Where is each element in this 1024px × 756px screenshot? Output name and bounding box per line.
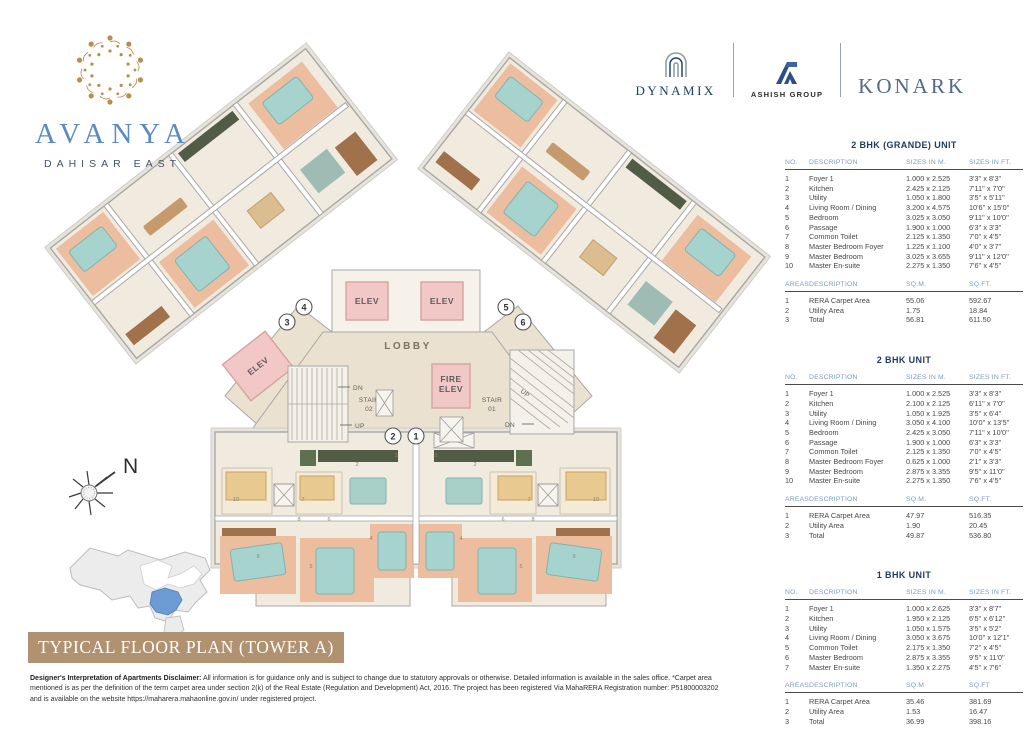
table-cell: Living Room / Dining <box>809 203 906 213</box>
table-cell: 9'11'' x 12'0'' <box>969 252 1023 262</box>
table-cell: Master En-suite <box>809 663 906 673</box>
konark-logo: KONARK <box>858 41 966 99</box>
dimension-row: 2Kitchen2.425 x 2.1257'11'' x 7'0'' <box>785 184 1023 194</box>
svg-text:1: 1 <box>413 432 418 442</box>
table-cell: 20.45 <box>969 521 1023 531</box>
table-cell: SQ.M. <box>906 281 969 291</box>
room-number: 4 <box>459 536 462 542</box>
room-number: 4 <box>369 536 372 542</box>
stair-number: 01 <box>488 406 496 413</box>
table-cell: 1 <box>785 174 809 184</box>
table-header-row: NO.DESCRIPTIONSIZES IN M.SIZES IN FT. <box>785 159 1023 170</box>
table-cell: Kitchen <box>809 184 906 194</box>
table-cell: 35.46 <box>906 697 969 707</box>
area-header-row: AREASDESCRIPTIONSQ.MSQ.FT <box>785 682 1023 693</box>
unit-table: 2 BHK UNIT NO.DESCRIPTIONSIZES IN M.SIZE… <box>785 355 1023 540</box>
table-cell: Total <box>809 531 906 541</box>
table-cell: 8 <box>785 457 809 467</box>
table-cell: 4'5'' x 7'6'' <box>969 663 1023 673</box>
brand-name: AVANYA <box>35 118 192 151</box>
table-cell: Utility <box>809 193 906 203</box>
table-cell: 3'3'' x 8'7'' <box>969 604 1023 614</box>
table-cell: AREAS <box>785 682 809 692</box>
room-number: 9 <box>256 554 259 560</box>
table-cell: 1.225 x 1.100 <box>906 242 969 252</box>
table-cell: Master Bedroom <box>809 653 906 663</box>
up-label: UP <box>355 423 365 430</box>
table-cell: Master Bedroom <box>809 467 906 477</box>
table-cell: 1 <box>785 604 809 614</box>
table-cell: 8 <box>785 242 809 252</box>
room-number: 8 <box>297 517 300 523</box>
table-cell: 6 <box>785 438 809 448</box>
dimension-row: 7Master En-suite1.350 x 2.2754'5'' x 7'6… <box>785 663 1023 673</box>
table-cell: 3'5'' x 5'11'' <box>969 193 1023 203</box>
dimension-row: 8Master Bedroom Foyer1.225 x 1.1004'0'' … <box>785 242 1023 252</box>
table-cell: 1 <box>785 389 809 399</box>
unit-table: 2 BHK (GRANDE) UNIT NO.DESCRIPTIONSIZES … <box>785 140 1023 325</box>
table-cell: Kitchen <box>809 399 906 409</box>
table-cell: DESCRIPTION <box>809 374 906 384</box>
unit-marker: 6 <box>515 314 531 330</box>
table-cell: 1.050 x 1.575 <box>906 624 969 634</box>
area-row: 1RERA Carpet Area55.06592.67 <box>785 296 1023 306</box>
table-cell: 3 <box>785 409 809 419</box>
table-cell: 1.350 x 2.275 <box>906 663 969 673</box>
table-cell: 2 <box>785 399 809 409</box>
table-cell: Foyer 1 <box>809 604 906 614</box>
table-cell: 381.69 <box>969 697 1023 707</box>
svg-text:2: 2 <box>390 432 395 442</box>
area-row: 2Utility Area1.5316.47 <box>785 707 1023 717</box>
room-number: 1 <box>394 453 397 459</box>
dimension-row: 5Common Toilet2.175 x 1.3507'2'' x 4'5'' <box>785 643 1023 653</box>
unit-marker: 5 <box>498 299 514 315</box>
table-cell: SIZES IN FT. <box>969 159 1023 169</box>
table-cell: Master Bedroom Foyer <box>809 457 906 467</box>
table-cell: 7'11'' x 7'0'' <box>969 184 1023 194</box>
table-cell: DESCRIPTION <box>809 281 906 291</box>
table-cell: 3.050 x 4.100 <box>906 418 969 428</box>
table-cell: 1.000 x 2.525 <box>906 174 969 184</box>
table-cell: 4 <box>785 633 809 643</box>
table-cell: 10 <box>785 261 809 271</box>
table-cell: 1.53 <box>906 707 969 717</box>
table-header-row: NO.DESCRIPTIONSIZES IN M.SIZES IN FT. <box>785 589 1023 600</box>
dimension-rows: 1Foyer 11.000 x 2.5253'3'' x 8'3''2Kitch… <box>785 385 1023 486</box>
table-cell: 6'5'' x 6'12'' <box>969 614 1023 624</box>
table-cell: 16.47 <box>969 707 1023 717</box>
table-cell: 6 <box>785 223 809 233</box>
room-number: 5 <box>519 564 522 570</box>
table-cell: SQ.FT <box>969 682 1023 692</box>
table-cell: NO. <box>785 374 809 384</box>
table-cell: 2.425 x 2.125 <box>906 184 969 194</box>
dynamix-label: DYNAMIX <box>635 83 715 99</box>
dimension-row: 7Common Toilet2.125 x 1.3507'0'' x 4'5'' <box>785 447 1023 457</box>
room-number: 2 <box>355 462 358 468</box>
table-cell: 1.050 x 1.800 <box>906 193 969 203</box>
table-cell: 9'5'' x 11'0'' <box>969 653 1023 663</box>
table-cell: DESCRIPTION <box>809 682 906 692</box>
table-cell: SIZES IN M. <box>906 159 969 169</box>
site-key-map <box>70 548 210 640</box>
table-cell: SQ.FT. <box>969 496 1023 506</box>
table-cell: Living Room / Dining <box>809 418 906 428</box>
svg-text:3: 3 <box>284 318 289 328</box>
table-cell: Kitchen <box>809 614 906 624</box>
dynamix-arch-icon <box>661 51 691 79</box>
table-cell: 3.200 x 4.575 <box>906 203 969 213</box>
table-cell: 2 <box>785 184 809 194</box>
unit-tables: 2 BHK (GRANDE) UNIT NO.DESCRIPTIONSIZES … <box>785 140 1023 756</box>
table-cell: 47.97 <box>906 511 969 521</box>
area-rows: 1RERA Carpet Area35.46381.692Utility Are… <box>785 693 1023 726</box>
stair-label: STAIR <box>482 397 502 404</box>
logo-divider <box>733 43 734 97</box>
dimension-row: 8Master Bedroom Foyer0.625 x 1.0002'1'' … <box>785 457 1023 467</box>
table-cell: 9 <box>785 252 809 262</box>
table-cell: Living Room / Dining <box>809 633 906 643</box>
dimension-row: 9Master Bedroom3.025 x 3.6559'11'' x 12'… <box>785 252 1023 262</box>
dimension-row: 10Master En-suite2.275 x 1.3507'6'' x 4'… <box>785 261 1023 271</box>
table-cell: DESCRIPTION <box>809 589 906 599</box>
table-cell: 4 <box>785 418 809 428</box>
table-cell: 10'6'' x 15'0'' <box>969 203 1023 213</box>
table-cell: NO. <box>785 159 809 169</box>
area-row: 3Total56.81611.50 <box>785 315 1023 325</box>
table-cell: 7 <box>785 232 809 242</box>
table-cell: 2.125 x 1.350 <box>906 232 969 242</box>
table-cell: 1.050 x 1.925 <box>906 409 969 419</box>
table-cell: SQ.M. <box>906 496 969 506</box>
table-title: 2 BHK (GRANDE) UNIT <box>785 140 1023 150</box>
table-cell: 2'1'' x 3'3'' <box>969 457 1023 467</box>
table-cell: Master En-suite <box>809 476 906 486</box>
table-cell: 3.025 x 3.655 <box>906 252 969 262</box>
dimension-row: 6Passage1.900 x 1.0006'3'' x 3'3'' <box>785 438 1023 448</box>
table-cell: 6 <box>785 653 809 663</box>
table-cell: 2 <box>785 306 809 316</box>
table-cell: 55.06 <box>906 296 969 306</box>
disclaimer-lead: Designer's Interpretation of Apartments … <box>30 675 201 682</box>
elev-label: ELEV <box>355 296 379 306</box>
table-cell: 10'0'' x 13'5'' <box>969 418 1023 428</box>
konark-label: KONARK <box>858 74 966 99</box>
table-cell: 3.050 x 3.675 <box>906 633 969 643</box>
svg-text:5: 5 <box>503 303 508 313</box>
dimension-row: 5Bedroom2.425 x 3.0507'11'' x 10'0'' <box>785 428 1023 438</box>
floor-plan-banner: TYPICAL FLOOR PLAN (TOWER A) <box>28 632 344 663</box>
room-number: 6 <box>327 517 330 523</box>
table-cell: 2.425 x 3.050 <box>906 428 969 438</box>
fire-elev-label: FIRE <box>440 374 461 384</box>
table-cell: 3'3'' x 8'3'' <box>969 389 1023 399</box>
table-cell: Common Toilet <box>809 447 906 457</box>
table-cell: 6'3'' x 3'3'' <box>969 438 1023 448</box>
table-cell: 2.100 x 2.125 <box>906 399 969 409</box>
north-label: N <box>123 455 138 478</box>
ashish-group-logo: ASHISH GROUP <box>751 41 823 99</box>
table-cell: 2.275 x 1.350 <box>906 476 969 486</box>
table-cell: 1 <box>785 697 809 707</box>
dimension-rows: 1Foyer 11.000 x 2.6253'3'' x 8'7''2Kitch… <box>785 600 1023 672</box>
highlighted-tower <box>150 588 182 615</box>
table-cell: 592.67 <box>969 296 1023 306</box>
table-cell: 516.35 <box>969 511 1023 521</box>
area-row: 2Utility Area1.7518.84 <box>785 306 1023 316</box>
elev-label: ELEV <box>430 296 454 306</box>
table-cell: NO. <box>785 589 809 599</box>
table-cell: 611.50 <box>969 315 1023 325</box>
table-cell: SIZES IN FT. <box>969 374 1023 384</box>
room-number: 5 <box>309 564 312 570</box>
table-cell: 3 <box>785 315 809 325</box>
table-cell: 7 <box>785 447 809 457</box>
unit-marker: 1 <box>408 428 424 444</box>
dimension-row: 5Bedroom3.025 x 3.0509'11'' x 10'0'' <box>785 213 1023 223</box>
table-cell: 1.75 <box>906 306 969 316</box>
table-cell: AREAS <box>785 281 809 291</box>
table-header-row: NO.DESCRIPTIONSIZES IN M.SIZES IN FT. <box>785 374 1023 385</box>
table-cell: Utility Area <box>809 707 906 717</box>
table-cell: 2.875 x 3.355 <box>906 653 969 663</box>
table-cell: Foyer 1 <box>809 389 906 399</box>
dimension-row: 3Utility1.050 x 1.9253'5'' x 6'4'' <box>785 409 1023 419</box>
table-cell: 9'11'' x 10'0'' <box>969 213 1023 223</box>
table-cell: 56.81 <box>906 315 969 325</box>
table-title: 1 BHK UNIT <box>785 570 1023 580</box>
table-cell: 7 <box>785 663 809 673</box>
dimension-row: 1Foyer 11.000 x 2.6253'3'' x 8'7'' <box>785 604 1023 614</box>
table-cell: Master Bedroom Foyer <box>809 242 906 252</box>
table-cell: 398.16 <box>969 717 1023 727</box>
ashish-label: ASHISH GROUP <box>751 90 823 99</box>
area-row: 1RERA Carpet Area47.97516.35 <box>785 511 1023 521</box>
stair-number: 02 <box>365 406 373 413</box>
room-number: 8 <box>531 517 534 523</box>
table-cell: 7'0'' x 4'5'' <box>969 447 1023 457</box>
table-cell: RERA Carpet Area <box>809 697 906 707</box>
table-cell: SIZES IN M. <box>906 589 969 599</box>
table-cell: 1.900 x 1.000 <box>906 223 969 233</box>
table-cell: 10'0'' x 12'1'' <box>969 633 1023 643</box>
room-number: 10 <box>593 497 599 503</box>
table-cell: 10 <box>785 476 809 486</box>
table-cell: RERA Carpet Area <box>809 511 906 521</box>
table-cell: 1 <box>785 296 809 306</box>
table-cell: 9 <box>785 467 809 477</box>
table-cell: 1.000 x 2.625 <box>906 604 969 614</box>
room-number: 7 <box>527 497 530 503</box>
table-cell: SQ.M <box>906 682 969 692</box>
brand-location: DAHISAR EAST <box>33 158 192 170</box>
table-cell: SIZES IN M. <box>906 374 969 384</box>
table-cell: Bedroom <box>809 428 906 438</box>
partner-logos: DYNAMIX ASHISH GROUP KONARK <box>635 40 966 100</box>
table-cell: Total <box>809 315 906 325</box>
dimension-row: 9Master Bedroom2.875 x 3.3559'5'' x 11'0… <box>785 467 1023 477</box>
compass-icon: N <box>69 455 138 515</box>
table-cell: SIZES IN FT. <box>969 589 1023 599</box>
table-cell: Foyer 1 <box>809 174 906 184</box>
table-title: 2 BHK UNIT <box>785 355 1023 365</box>
dimension-row: 2Kitchen1.950 x 2.1256'5'' x 6'12'' <box>785 614 1023 624</box>
table-cell: 3.025 x 3.050 <box>906 213 969 223</box>
table-cell: 3 <box>785 531 809 541</box>
brand-logo: AVANYA DAHISAR EAST <box>28 28 192 170</box>
dn-label: DN <box>353 385 363 392</box>
room-number: 6 <box>501 517 504 523</box>
table-cell: 9'5'' x 11'0'' <box>969 467 1023 477</box>
table-cell: 49.87 <box>906 531 969 541</box>
table-cell: SQ.FT. <box>969 281 1023 291</box>
bottom-block <box>211 428 621 606</box>
table-cell: 7'11'' x 10'0'' <box>969 428 1023 438</box>
room-number: 2 <box>473 462 476 468</box>
table-cell: 2.875 x 3.355 <box>906 467 969 477</box>
table-cell: 3'5'' x 6'4'' <box>969 409 1023 419</box>
dimension-row: 2Kitchen2.100 x 2.1256'11'' x 7'0'' <box>785 399 1023 409</box>
svg-text:6: 6 <box>520 318 525 328</box>
unit-marker: 2 <box>385 428 401 444</box>
table-cell: 4'0'' x 3'7'' <box>969 242 1023 252</box>
table-cell: 5 <box>785 428 809 438</box>
table-cell: 7'6'' x 4'5'' <box>969 261 1023 271</box>
table-cell: 1.000 x 2.525 <box>906 389 969 399</box>
room-number: 1 <box>434 453 437 459</box>
table-cell: Utility <box>809 409 906 419</box>
dimension-rows: 1Foyer 11.000 x 2.5253'3'' x 8'3''2Kitch… <box>785 170 1023 271</box>
room-number: 9 <box>572 554 575 560</box>
dimension-row: 6Master Bedroom2.875 x 3.3559'5'' x 11'0… <box>785 653 1023 663</box>
area-header-row: AREASDESCRIPTIONSQ.M.SQ.FT. <box>785 496 1023 507</box>
area-row: 3Total36.99398.16 <box>785 717 1023 727</box>
table-cell: Passage <box>809 223 906 233</box>
table-cell: Master Bedroom <box>809 252 906 262</box>
table-cell: 2.275 x 1.350 <box>906 261 969 271</box>
dimension-row: 3Utility1.050 x 1.8003'5'' x 5'11'' <box>785 193 1023 203</box>
table-cell: 6'3'' x 3'3'' <box>969 223 1023 233</box>
table-cell: Common Toilet <box>809 232 906 242</box>
table-cell: 5 <box>785 643 809 653</box>
table-cell: 3'5'' x 5'2'' <box>969 624 1023 634</box>
table-cell: 18.84 <box>969 306 1023 316</box>
disclaimer-text: Designer's Interpretation of Apartments … <box>30 674 724 705</box>
table-cell: RERA Carpet Area <box>809 296 906 306</box>
table-cell: AREAS <box>785 496 809 506</box>
dimension-row: 10Master En-suite2.275 x 1.3507'6'' x 4'… <box>785 476 1023 486</box>
dynamix-logo: DYNAMIX <box>635 41 715 99</box>
table-cell: 3'3'' x 8'3'' <box>969 174 1023 184</box>
table-cell: 3 <box>785 624 809 634</box>
table-cell: DESCRIPTION <box>809 496 906 506</box>
table-cell: Master En-suite <box>809 261 906 271</box>
table-cell: 5 <box>785 213 809 223</box>
table-cell: Utility Area <box>809 306 906 316</box>
unit-table: 1 BHK UNIT NO.DESCRIPTIONSIZES IN M.SIZE… <box>785 570 1023 726</box>
table-cell: 7'2'' x 4'5'' <box>969 643 1023 653</box>
table-cell: Bedroom <box>809 213 906 223</box>
table-cell: 4 <box>785 203 809 213</box>
table-cell: 7'6'' x 4'5'' <box>969 476 1023 486</box>
area-row: 1RERA Carpet Area35.46381.69 <box>785 697 1023 707</box>
table-cell: 6'11'' x 7'0'' <box>969 399 1023 409</box>
dimension-row: 4Living Room / Dining3.200 x 4.57510'6''… <box>785 203 1023 213</box>
dimension-row: 3Utility1.050 x 1.5753'5'' x 5'2'' <box>785 624 1023 634</box>
unit-marker: 4 <box>296 299 312 315</box>
unit-marker: 3 <box>279 314 295 330</box>
svg-text:4: 4 <box>301 303 306 313</box>
dn-label: DN <box>505 422 515 429</box>
table-cell: 3 <box>785 717 809 727</box>
table-cell: 536.80 <box>969 531 1023 541</box>
area-row: 2Utility Area1.9020.45 <box>785 521 1023 531</box>
mandala-icon <box>55 28 165 112</box>
logo-divider <box>840 43 841 97</box>
dimension-row: 1Foyer 11.000 x 2.5253'3'' x 8'3'' <box>785 389 1023 399</box>
dimension-row: 1Foyer 11.000 x 2.5253'3'' x 8'3'' <box>785 174 1023 184</box>
table-cell: Utility <box>809 624 906 634</box>
table-cell: Total <box>809 717 906 727</box>
dimension-row: 4Living Room / Dining3.050 x 4.10010'0''… <box>785 418 1023 428</box>
table-cell: 3 <box>785 193 809 203</box>
table-cell: 1 <box>785 511 809 521</box>
lobby-label: LOBBY <box>384 341 432 352</box>
room-number: 7 <box>301 497 304 503</box>
table-cell: 1.90 <box>906 521 969 531</box>
table-cell: 7'0'' x 4'5'' <box>969 232 1023 242</box>
dimension-row: 7Common Toilet2.125 x 1.3507'0'' x 4'5'' <box>785 232 1023 242</box>
table-cell: 1.900 x 1.000 <box>906 438 969 448</box>
dimension-row: 6Passage1.900 x 1.0006'3'' x 3'3'' <box>785 223 1023 233</box>
area-row: 3Total49.87536.80 <box>785 531 1023 541</box>
ashish-a-icon <box>774 60 800 86</box>
table-cell: 0.625 x 1.000 <box>906 457 969 467</box>
table-cell: 2 <box>785 614 809 624</box>
area-rows: 1RERA Carpet Area55.06592.672Utility Are… <box>785 292 1023 325</box>
table-cell: 2 <box>785 521 809 531</box>
area-header-row: AREASDESCRIPTIONSQ.M.SQ.FT. <box>785 281 1023 292</box>
table-cell: Passage <box>809 438 906 448</box>
table-cell: 2.175 x 1.350 <box>906 643 969 653</box>
dimension-row: 4Living Room / Dining3.050 x 3.67510'0''… <box>785 633 1023 643</box>
table-cell: 2.125 x 1.350 <box>906 447 969 457</box>
table-cell: 1.950 x 2.125 <box>906 614 969 624</box>
area-rows: 1RERA Carpet Area47.97516.352Utility Are… <box>785 507 1023 540</box>
table-cell: Common Toilet <box>809 643 906 653</box>
fire-elev-label: ELEV <box>439 384 463 394</box>
room-number: 10 <box>233 497 239 503</box>
table-cell: 2 <box>785 707 809 717</box>
table-cell: Utility Area <box>809 521 906 531</box>
table-cell: DESCRIPTION <box>809 159 906 169</box>
table-cell: 36.99 <box>906 717 969 727</box>
